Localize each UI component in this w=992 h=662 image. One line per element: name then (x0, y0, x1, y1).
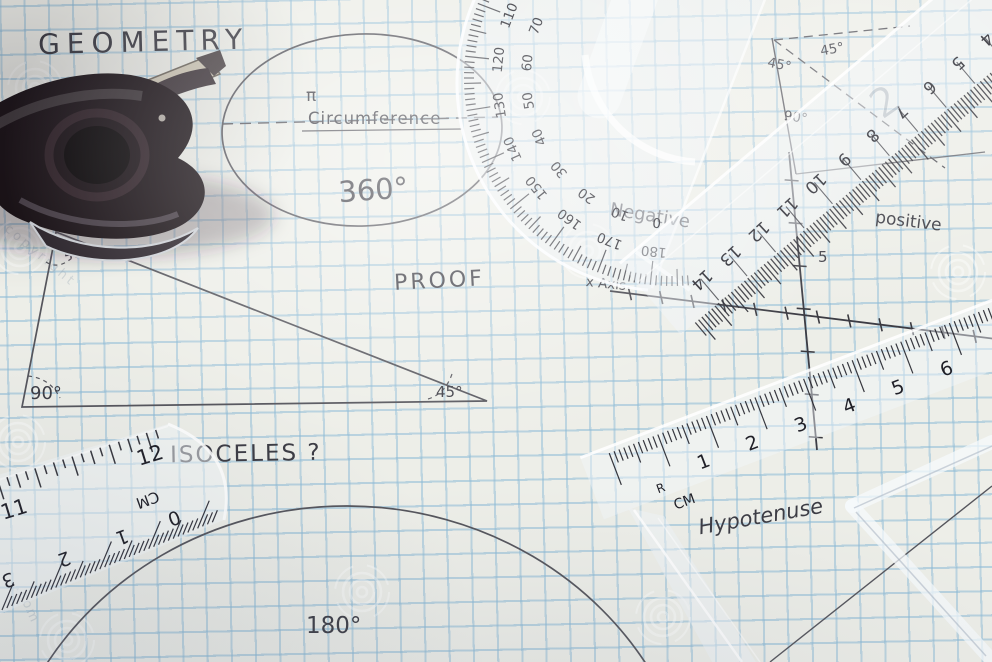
tick-mark (885, 162, 896, 175)
tick-mark (849, 192, 860, 205)
watermark-ring (13, 437, 23, 447)
triangle-angle-left: 90° (30, 383, 62, 404)
tick-mark (810, 225, 821, 238)
tick-mark (970, 90, 981, 103)
tick-mark (702, 317, 713, 330)
tick-mark (938, 117, 949, 130)
tick-mark (758, 270, 769, 283)
label-proof: PROOF (393, 266, 485, 296)
tick-mark (859, 184, 870, 197)
tick-mark (787, 245, 798, 258)
set-square: 123456RCM Hypotenuse (580, 293, 992, 662)
watermark-spiral-icon (931, 245, 985, 299)
protractor-inner-number: 50 (520, 91, 538, 110)
tick-mark (964, 95, 975, 108)
triangle-angle-right: 45° (436, 383, 463, 401)
tick-mark (712, 309, 723, 322)
watermark-ring (6, 430, 30, 454)
watermark-spiral-icon (0, 415, 45, 469)
set-square-cutout-ridge (852, 442, 992, 506)
tick-mark (465, 62, 475, 63)
tick-mark (767, 262, 778, 275)
label-180: 180° (306, 613, 361, 639)
label-360: 360° (337, 170, 409, 209)
tick-mark (705, 314, 716, 327)
protractor-outer-number: 120 (490, 46, 509, 73)
tick-mark (800, 234, 811, 247)
tick-mark (875, 170, 886, 183)
tick-mark (908, 142, 919, 155)
protractor-inner-number: 60 (519, 53, 537, 72)
tick-mark (826, 212, 837, 225)
tick-mark (843, 198, 854, 211)
watermark-ring (55, 628, 79, 652)
tick-mark (833, 206, 844, 219)
tick-mark (905, 145, 916, 158)
tick-mark (931, 123, 942, 136)
tick-mark (695, 323, 706, 336)
tick-mark (974, 87, 985, 100)
watermark-ring (658, 612, 668, 622)
watermark-spiral-icon (40, 613, 94, 662)
tick-mark (754, 273, 765, 286)
tick-mark (980, 81, 991, 94)
tick-mark (925, 128, 936, 141)
tick-mark (866, 178, 877, 191)
label-positive: positive (874, 208, 943, 236)
watermark-ring (350, 580, 374, 604)
tick-mark (464, 88, 474, 89)
watermark-spiral-icon (335, 565, 389, 619)
tick-mark (803, 231, 814, 244)
tick-mark (954, 104, 965, 117)
tick-mark (839, 201, 850, 214)
tick-mark (807, 228, 818, 241)
tick-mark (882, 165, 893, 178)
label-hypotenuse: Hypotenuse (697, 494, 825, 540)
watermark-ring (651, 605, 675, 629)
watermark-ring (946, 260, 970, 284)
y-axis-tick (797, 308, 811, 309)
tick-mark (465, 94, 475, 95)
tick-mark (941, 115, 952, 128)
tick-mark (951, 106, 962, 119)
tick-mark (464, 67, 474, 68)
tick-mark (915, 137, 926, 150)
compass-tool (0, 50, 275, 260)
watermark-ring (953, 267, 963, 277)
photo-geometry-scene: copyright .com π Circumference 360° GEOM… (0, 0, 992, 662)
tick-mark (957, 101, 968, 114)
tick-mark (836, 203, 847, 216)
label-y-number: 5 (818, 248, 828, 266)
tick-mark (741, 284, 752, 297)
y-axis-tick (801, 351, 815, 352)
tick-mark (856, 187, 867, 200)
figure-angle-a: 45° (766, 55, 793, 76)
tick-mark (934, 120, 945, 133)
tick-mark (820, 217, 831, 230)
tick-mark (921, 131, 932, 144)
tick-mark (823, 214, 834, 227)
tick-mark (869, 176, 880, 189)
tick-mark (853, 189, 864, 202)
cm-ruler-label-cm: CM (672, 491, 698, 514)
tick-mark (902, 148, 913, 161)
tick-mark (872, 173, 883, 186)
tick-mark (948, 109, 959, 122)
tick-mark (735, 289, 746, 302)
scene-drawing: copyright .com π Circumference 360° GEOM… (0, 0, 992, 662)
tick-mark (918, 134, 929, 147)
label-circumference: Circumference (308, 109, 441, 128)
tick-mark (761, 267, 772, 280)
tick-mark (744, 281, 755, 294)
tick-mark (784, 248, 795, 261)
tick-mark (738, 286, 749, 299)
figure-angle-b: 45° (819, 40, 845, 60)
watermark-ring (357, 587, 367, 597)
tick-mark (725, 298, 736, 311)
tick-mark (790, 242, 801, 255)
tick-mark (774, 256, 785, 269)
tick-mark (751, 275, 762, 288)
tick-mark (817, 220, 828, 233)
label-pi: π (306, 86, 316, 106)
tick-mark (777, 253, 788, 266)
tick-mark (771, 259, 782, 272)
tick-mark (889, 159, 900, 172)
tick-mark (708, 311, 719, 324)
tick-mark (967, 92, 978, 105)
